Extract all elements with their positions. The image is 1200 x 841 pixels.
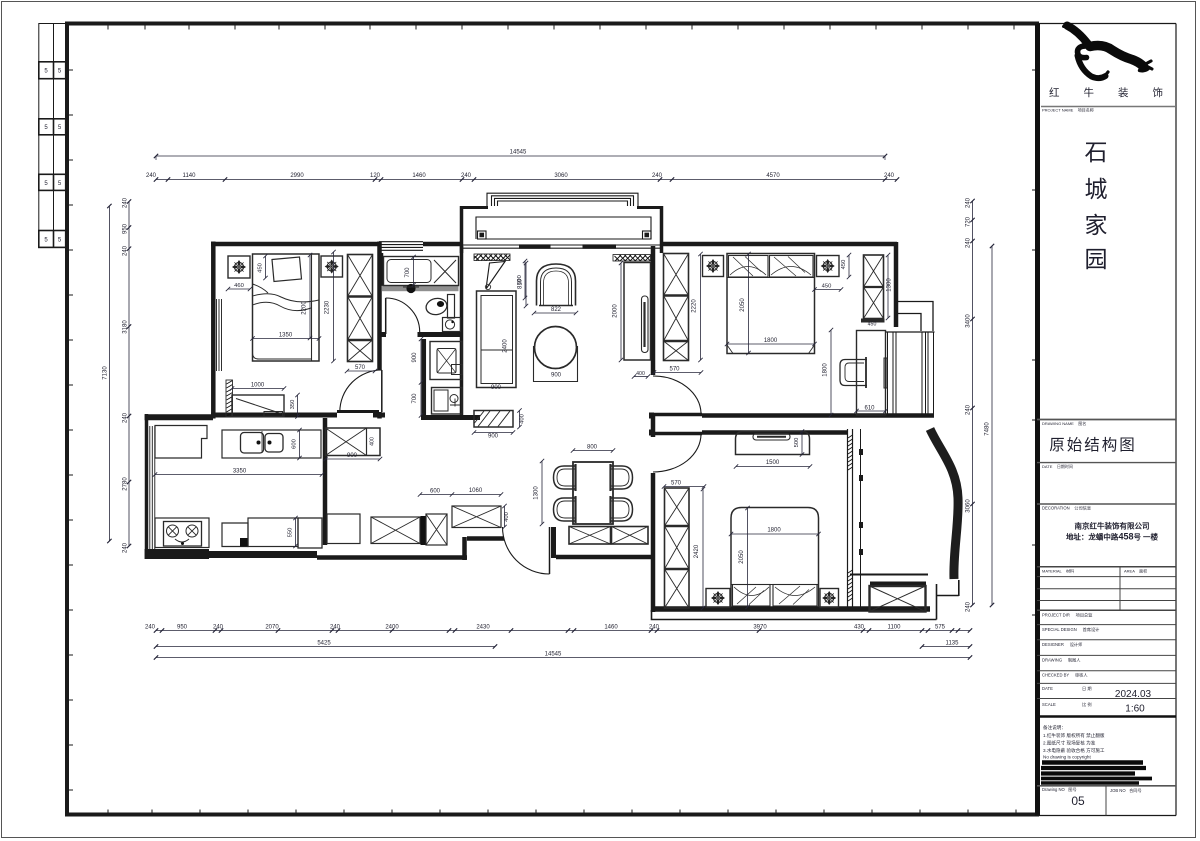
- svg-text:3350: 3350: [233, 469, 247, 475]
- svg-text:DATE 日期时间: DATE 日期时间: [1042, 463, 1073, 469]
- svg-text:240: 240: [213, 625, 224, 631]
- svg-text:240: 240: [966, 197, 972, 208]
- svg-text:240: 240: [123, 542, 129, 553]
- svg-text:900: 900: [551, 373, 562, 379]
- svg-text:450: 450: [258, 263, 264, 273]
- svg-text:822: 822: [551, 307, 562, 313]
- svg-text:1460: 1460: [412, 173, 426, 179]
- svg-text:No drawing is copyright: No drawing is copyright: [1043, 755, 1091, 760]
- svg-text:原始结构图: 原始结构图: [1049, 436, 1137, 454]
- svg-text:MATERIAL 材料: MATERIAL 材料: [1042, 568, 1074, 574]
- svg-text:430: 430: [854, 625, 865, 631]
- svg-text:1800: 1800: [767, 528, 781, 534]
- svg-text:5425: 5425: [317, 641, 331, 647]
- svg-text:950: 950: [177, 625, 188, 631]
- svg-text:1800: 1800: [823, 363, 829, 377]
- svg-text:2780: 2780: [123, 477, 129, 491]
- svg-text:1135: 1135: [946, 641, 960, 647]
- svg-text:240: 240: [966, 404, 972, 415]
- svg-text:园: 园: [1085, 246, 1108, 272]
- svg-text:600: 600: [292, 439, 298, 449]
- svg-text:2230: 2230: [325, 300, 331, 314]
- svg-text:1300: 1300: [534, 486, 540, 500]
- svg-text:石: 石: [1085, 139, 1108, 165]
- svg-text:350: 350: [290, 400, 296, 410]
- svg-text:4570: 4570: [766, 173, 780, 179]
- svg-text:DECORATION 公司信息: DECORATION 公司信息: [1042, 505, 1091, 512]
- svg-text:550: 550: [288, 528, 294, 538]
- svg-text:240: 240: [145, 625, 156, 631]
- svg-text:DRAWING 制图人: DRAWING 制图人: [1042, 657, 1081, 664]
- svg-text:240: 240: [966, 237, 972, 248]
- svg-text:2990: 2990: [290, 173, 304, 179]
- svg-text:2400: 2400: [385, 625, 399, 631]
- svg-text:240: 240: [146, 173, 157, 179]
- svg-text:DRAWING NAME 图名: DRAWING NAME 图名: [1042, 420, 1086, 426]
- svg-text:2200: 2200: [302, 301, 308, 315]
- svg-text:1100: 1100: [888, 625, 902, 631]
- svg-text:PROJECT DIR 项目总监: PROJECT DIR 项目总监: [1042, 612, 1092, 619]
- svg-text:240: 240: [884, 173, 895, 179]
- svg-text:2400: 2400: [503, 339, 509, 353]
- svg-text:900: 900: [491, 385, 502, 391]
- svg-text:1500: 1500: [766, 460, 780, 466]
- svg-text:2000: 2000: [613, 304, 619, 318]
- svg-text:570: 570: [671, 481, 682, 487]
- svg-text:DESIGNER 设计师: DESIGNER 设计师: [1042, 641, 1082, 648]
- svg-text:3060: 3060: [554, 173, 568, 179]
- svg-text:SCALE: SCALE: [1042, 702, 1056, 707]
- svg-text:900: 900: [488, 434, 499, 440]
- svg-text:240: 240: [123, 197, 129, 208]
- svg-text:1350: 1350: [279, 333, 293, 339]
- svg-text:14545: 14545: [545, 652, 562, 658]
- svg-text:120: 120: [370, 173, 381, 179]
- svg-text:2.图纸尺寸 现场复核 为准: 2.图纸尺寸 现场复核 为准: [1043, 740, 1096, 747]
- svg-text:900: 900: [347, 453, 358, 459]
- svg-text:2220: 2220: [692, 299, 698, 313]
- svg-text:400: 400: [504, 512, 510, 522]
- svg-text:2430: 2430: [476, 625, 490, 631]
- svg-text:2024.03: 2024.03: [1115, 689, 1152, 700]
- svg-text:1460: 1460: [604, 625, 618, 631]
- svg-text:570: 570: [669, 367, 680, 373]
- svg-text:3.水电隐蔽 验收合格 方可施工: 3.水电隐蔽 验收合格 方可施工: [1043, 747, 1105, 754]
- svg-text:450: 450: [868, 322, 877, 328]
- svg-text:3970: 3970: [753, 625, 767, 631]
- svg-text:3400: 3400: [966, 314, 972, 328]
- svg-text:城: 城: [1085, 176, 1108, 202]
- svg-text:500: 500: [794, 438, 800, 448]
- svg-text:240: 240: [123, 245, 129, 256]
- svg-text:460: 460: [234, 283, 244, 289]
- svg-text:570: 570: [355, 365, 366, 371]
- svg-text:400: 400: [636, 371, 645, 377]
- svg-text:PROJECT NAME 项目名称: PROJECT NAME 项目名称: [1042, 107, 1094, 113]
- svg-text:720: 720: [966, 216, 972, 227]
- svg-text:240: 240: [330, 625, 341, 631]
- svg-text:南京红牛装饰有限公司: 南京红牛装饰有限公司: [1075, 521, 1150, 531]
- svg-text:2070: 2070: [265, 625, 279, 631]
- svg-text:240: 240: [461, 173, 472, 179]
- svg-text:3180: 3180: [123, 320, 129, 334]
- svg-text:3060: 3060: [966, 499, 972, 513]
- svg-text:比 例: 比 例: [1082, 701, 1092, 708]
- svg-text:2050: 2050: [740, 298, 746, 312]
- svg-text:700: 700: [405, 267, 411, 278]
- svg-text:红牛装饰: 红牛装饰: [1049, 86, 1187, 99]
- svg-text:2050: 2050: [739, 550, 745, 564]
- svg-text:14545: 14545: [510, 150, 527, 156]
- svg-text:2420: 2420: [694, 544, 700, 558]
- svg-text:CHECKED BY 审核人: CHECKED BY 审核人: [1042, 672, 1088, 679]
- svg-text:7480: 7480: [985, 422, 991, 436]
- svg-text:DATE: DATE: [1042, 686, 1053, 691]
- svg-text:810: 810: [518, 278, 524, 289]
- svg-text:600: 600: [430, 489, 441, 495]
- svg-text:575: 575: [935, 625, 946, 631]
- svg-text:900: 900: [412, 352, 418, 363]
- svg-text:05: 05: [1071, 794, 1085, 808]
- svg-text:610: 610: [864, 406, 875, 412]
- svg-text:240: 240: [123, 412, 129, 423]
- svg-text:SPECIAL DESIGN 首席设计: SPECIAL DESIGN 首席设计: [1042, 626, 1099, 633]
- svg-text:240: 240: [966, 601, 972, 612]
- svg-text:AREA 面积: AREA 面积: [1124, 568, 1147, 574]
- svg-text:1000: 1000: [251, 383, 265, 389]
- svg-text:700: 700: [412, 393, 418, 404]
- svg-text:1:60: 1:60: [1125, 704, 1145, 715]
- svg-text:备注说明：: 备注说明：: [1043, 724, 1066, 731]
- svg-text:1300: 1300: [887, 278, 893, 292]
- svg-text:1800: 1800: [764, 338, 778, 344]
- svg-text:240: 240: [649, 625, 660, 631]
- svg-text:家: 家: [1085, 212, 1108, 238]
- svg-text:400: 400: [520, 414, 526, 424]
- svg-text:800: 800: [587, 445, 598, 451]
- svg-text:950: 950: [123, 223, 129, 234]
- svg-text:7130: 7130: [103, 366, 109, 380]
- svg-text:JOB NO 合同号: JOB NO 合同号: [1110, 787, 1142, 794]
- svg-text:1060: 1060: [469, 488, 483, 494]
- svg-text:1140: 1140: [183, 173, 197, 179]
- svg-text:240: 240: [652, 173, 663, 179]
- svg-text:地址：龙蟠中路458号 一楼: 地址：龙蟠中路458号 一楼: [1066, 532, 1159, 542]
- svg-text:1.红牛装饰 版权所有 禁止翻版: 1.红牛装饰 版权所有 禁止翻版: [1043, 732, 1105, 739]
- svg-text:450: 450: [841, 260, 847, 270]
- svg-text:400: 400: [370, 437, 376, 446]
- svg-text:450: 450: [822, 284, 832, 290]
